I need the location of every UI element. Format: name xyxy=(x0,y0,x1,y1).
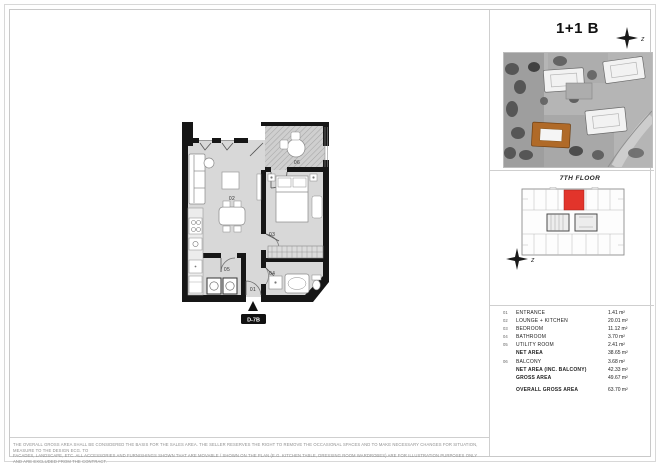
dryer xyxy=(223,278,237,294)
row-value: 42.33 m² xyxy=(608,366,652,374)
area-row: 03 BEDROOM 11.12 m² xyxy=(503,325,652,333)
chair xyxy=(234,226,241,232)
row-label: GROSS AREA xyxy=(516,374,608,382)
area-row-gross: GROSS AREA 49.67 m² xyxy=(503,374,652,382)
north-letter: z xyxy=(530,257,535,264)
disclaimer-line-1: THE OVERALL GROSS AREA SHALL BE CONSIDER… xyxy=(13,442,483,453)
row-number: 02 xyxy=(503,317,516,325)
row-label: BEDROOM xyxy=(516,325,608,333)
toilet xyxy=(312,275,321,280)
fridge xyxy=(189,276,202,293)
photo-divider xyxy=(490,170,654,171)
row-value: 20.01 m² xyxy=(608,317,652,325)
floor-plan-drawing: 01 02 03 04 05 06 D-7B xyxy=(175,110,360,325)
row-number: 03 xyxy=(503,325,516,333)
balcony-chair xyxy=(280,140,288,149)
row-value: 63.70 m² xyxy=(608,386,652,394)
north-letter: z xyxy=(640,36,645,43)
area-row: 01 ENTRANCE 1.41 m² xyxy=(503,309,652,317)
row-label: LOUNGE + KITCHEN xyxy=(516,317,608,325)
keyplan-divider xyxy=(490,305,654,306)
building xyxy=(585,107,627,135)
row-value: 38.65 m² xyxy=(608,349,652,357)
row-label: ENTRANCE xyxy=(516,309,608,317)
north-arrow-icon: z xyxy=(505,247,539,271)
row-label: NET AREA xyxy=(516,349,608,357)
coffee-table xyxy=(222,172,239,189)
row-label: OVERALL GROSS AREA xyxy=(516,386,608,394)
room-label-lounge: 02 xyxy=(229,196,235,202)
row-number: 05 xyxy=(503,341,516,349)
row-value: 11.12 m² xyxy=(608,325,652,333)
area-row: 05 UTILITY ROOM 2.41 m² xyxy=(503,341,652,349)
area-row: 04 BATHROOM 3.70 m² xyxy=(503,333,652,341)
row-value: 1.41 m² xyxy=(608,309,652,317)
row-label: NET AREA (INC. BALCONY) xyxy=(516,366,608,374)
area-table: 01 ENTRANCE 1.41 m² 02 LOUNGE + KITCHEN … xyxy=(503,309,652,394)
balcony-chair xyxy=(291,132,300,140)
row-value: 49.67 m² xyxy=(608,374,652,382)
kitchen xyxy=(188,208,203,295)
armchair xyxy=(312,196,322,218)
room-label-bathroom: 04 xyxy=(269,271,275,277)
row-label: BATHROOM xyxy=(516,333,608,341)
disclaimer: THE OVERALL GROSS AREA SHALL BE CONSIDER… xyxy=(13,442,483,464)
row-value: 2.41 m² xyxy=(608,341,652,349)
room-label-balcony: 06 xyxy=(294,160,300,166)
row-number: 06 xyxy=(503,358,516,366)
row-value: 3.68 m² xyxy=(608,358,652,366)
site-aerial-photo xyxy=(503,52,653,168)
tv-unit xyxy=(257,174,261,200)
row-value: 3.70 m² xyxy=(608,333,652,341)
pillow xyxy=(293,178,306,187)
dining-table xyxy=(219,207,245,225)
drawing-sheet: 01 02 03 04 05 06 D-7B 1+1 B z xyxy=(0,0,660,466)
area-row: 06 BALCONY 3.68 m² xyxy=(503,358,652,366)
area-row-net-balcony: NET AREA (INC. BALCONY) 42.33 m² xyxy=(503,366,652,374)
area-row-overall-gross: OVERALL GROSS AREA 63.70 m² xyxy=(503,386,652,394)
disclaimer-line-2: FACADES, LANDSCAPE, ETC. ALL ACCESSORIES… xyxy=(13,453,483,464)
entrance-arrow-icon xyxy=(248,301,258,311)
area-row-net: NET AREA 38.65 m² xyxy=(503,349,652,357)
room-label-entrance: 01 xyxy=(250,287,256,293)
row-number: 01 xyxy=(503,309,516,317)
unit-code-text: D-7B xyxy=(247,318,260,324)
floor-plan: 01 02 03 04 05 06 D-7B xyxy=(175,110,360,325)
sink xyxy=(189,238,202,250)
side-table xyxy=(204,158,214,168)
row-label: BALCONY xyxy=(516,358,608,366)
chair xyxy=(223,226,230,232)
disclaimer-divider xyxy=(10,437,489,438)
north-arrow-icon: z xyxy=(615,26,649,50)
washer xyxy=(207,278,221,294)
podium xyxy=(566,83,592,99)
area-row: 02 LOUNGE + KITCHEN 20.01 m² xyxy=(503,317,652,325)
row-number: 04 xyxy=(503,333,516,341)
sofa xyxy=(189,154,205,204)
stove xyxy=(189,218,202,234)
room-label-utility: 05 xyxy=(224,267,230,273)
pillow xyxy=(278,178,291,187)
floor-label: 7TH FLOOR xyxy=(505,175,655,182)
highlighted-unit xyxy=(564,190,584,210)
row-label: UTILITY ROOM xyxy=(516,341,608,349)
balcony-table xyxy=(287,139,305,157)
room-label-bedroom: 03 xyxy=(269,232,275,238)
panel-divider xyxy=(489,10,490,456)
